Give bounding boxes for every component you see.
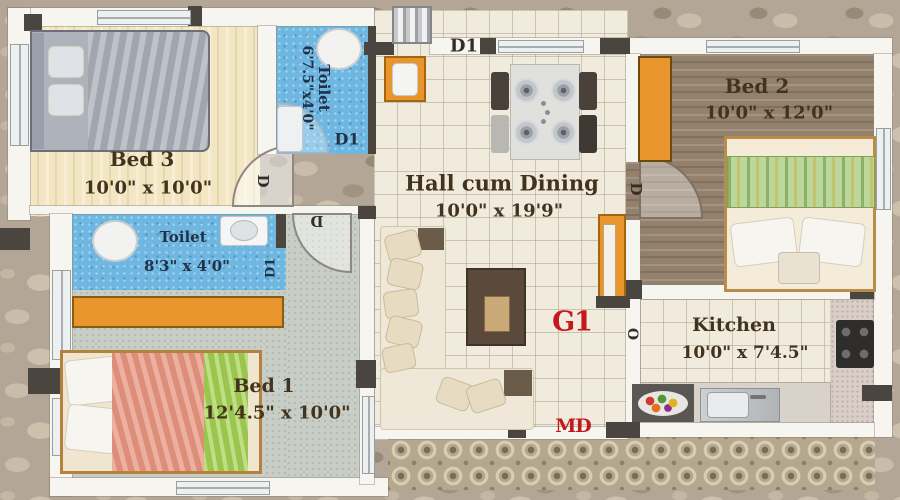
- grill-label-g1: G1: [552, 307, 592, 338]
- toilet-top-dims: 6'7.5"x4'0": [299, 45, 315, 130]
- opening-label-o-kitchen: O: [624, 328, 640, 340]
- door-label-d-bed3: D: [254, 174, 272, 187]
- floor-plan: Bed 3 10'0" x 10'0" Toilet 6'7.5"x4'0" H…: [0, 0, 900, 500]
- table-dot: [541, 119, 546, 124]
- plate: [551, 120, 576, 145]
- bed2-stool: [778, 252, 820, 284]
- toilet-top-label-block: Toilet 6'7.5"x4'0": [299, 45, 333, 130]
- kitchen-dims: 10'0" x 7'4.5": [682, 343, 809, 363]
- pillow: [48, 46, 84, 78]
- dining-chair: [491, 72, 509, 110]
- stove: [836, 320, 874, 368]
- door-label-d1-toilet-top: D1: [334, 130, 359, 149]
- refrigerator-base: [596, 296, 630, 308]
- table-dot: [545, 110, 550, 115]
- washbasin-round: [92, 220, 138, 262]
- table-dot: [541, 101, 546, 106]
- main-door-label-md: MD: [555, 415, 591, 437]
- bed1-dims: 12'4.5" x 10'0": [204, 403, 351, 424]
- sink-bowl: [707, 392, 749, 418]
- bed3-label: Bed 3: [110, 147, 175, 171]
- fruit-platter: [638, 391, 688, 416]
- door-label-d-bed1: D: [310, 212, 323, 230]
- plate: [551, 78, 576, 103]
- door-label-d1-hall: D1: [450, 36, 478, 57]
- washbasin-bowl: [392, 63, 418, 96]
- sofa-side-table: [504, 370, 532, 396]
- bed1-wardrobe: [72, 296, 284, 328]
- bed2-label: Bed 2: [725, 74, 790, 98]
- pillow: [48, 84, 84, 116]
- bed3-dims: 10'0" x 10'0": [84, 178, 212, 199]
- plate: [514, 78, 539, 103]
- hall-label: Hall cum Dining: [405, 171, 599, 196]
- toilet-mid-dims: 8'3" x 4'0": [144, 257, 230, 275]
- bed3-duvet: [88, 32, 208, 150]
- washing-machine: [392, 6, 432, 44]
- wc-bowl: [230, 220, 258, 241]
- plate: [514, 120, 539, 145]
- kitchen-label: Kitchen: [692, 314, 776, 336]
- sofa-side-table: [418, 228, 444, 250]
- bed3-headboard: [32, 33, 44, 149]
- sofa-pillow: [382, 288, 420, 320]
- bed2-blanket: [727, 156, 875, 208]
- toilet-top-label: Toilet: [315, 45, 333, 130]
- bed2-wardrobe: [638, 56, 672, 162]
- center-table-decor: [484, 296, 510, 332]
- bed2-dims: 10'0" x 12'0": [705, 103, 833, 124]
- door-label-d1-toilet-mid: D1: [264, 258, 279, 278]
- door-label-d-bed2: D: [627, 182, 645, 195]
- dining-chair: [491, 115, 509, 153]
- sink-faucet: [750, 395, 766, 399]
- hall-dims: 10'0" x 19'9": [435, 201, 563, 222]
- dining-chair: [579, 115, 597, 153]
- refrigerator-door: [603, 224, 616, 298]
- toilet-mid-label: Toilet: [159, 228, 206, 246]
- dining-chair: [579, 72, 597, 110]
- bed1-label: Bed 1: [233, 375, 294, 397]
- bed1-blanket-salmon: [112, 353, 204, 471]
